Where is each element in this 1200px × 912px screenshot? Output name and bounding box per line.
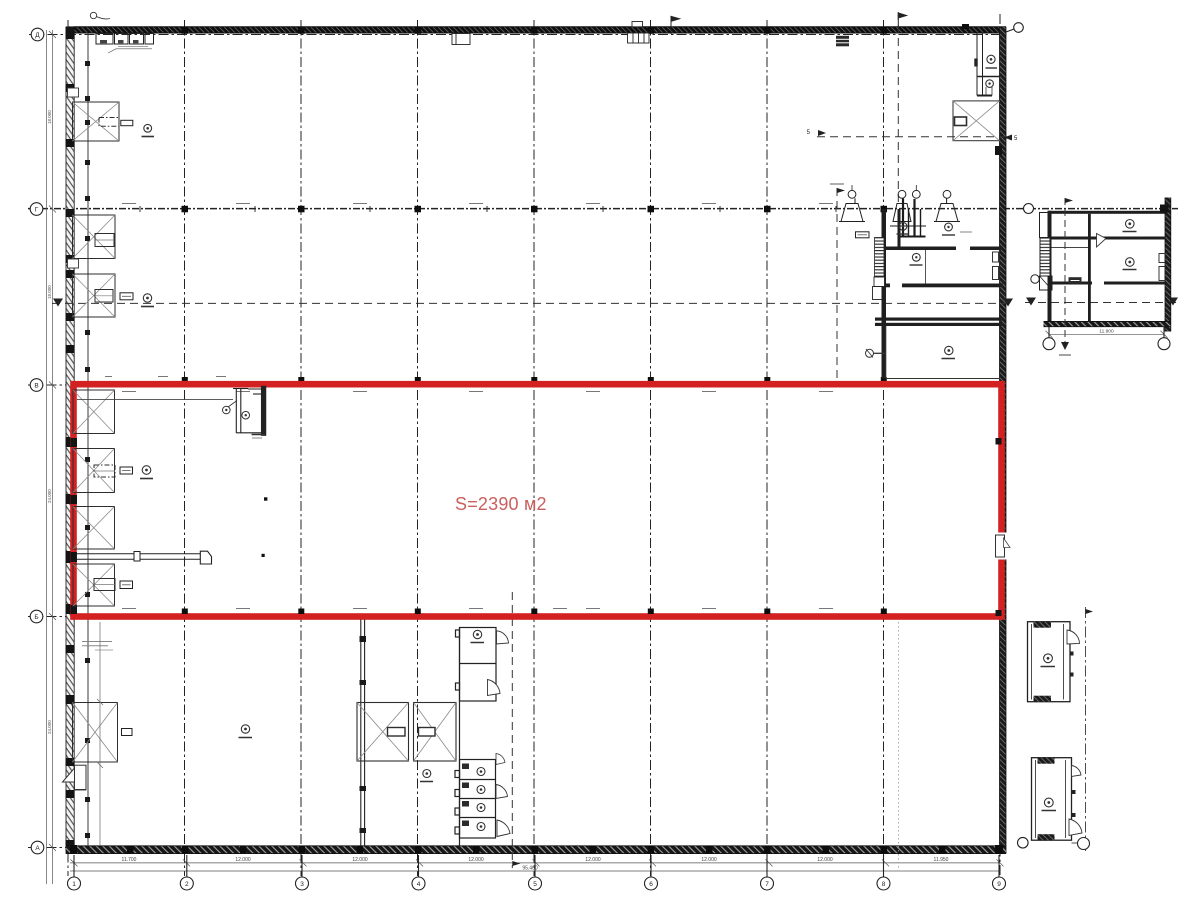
svg-text:18.000: 18.000 [47,110,52,124]
svg-text:Б: Б [34,614,38,621]
svg-text:6: 6 [649,881,653,888]
svg-text:Д: Д [35,32,40,39]
svg-text:5: 5 [533,881,537,888]
svg-text:18.000: 18.000 [47,285,52,299]
svg-text:2: 2 [185,881,189,888]
svg-text:12.000: 12.000 [468,857,484,863]
svg-text:Г: Г [35,207,39,214]
svg-text:S=2390 м2: S=2390 м2 [455,494,547,514]
svg-text:11.950: 11.950 [934,857,949,863]
svg-text:8: 8 [882,881,886,888]
svg-text:12.000: 12.000 [817,857,833,863]
svg-text:9: 9 [997,881,1001,888]
svg-text:11.700: 11.700 [122,857,137,863]
svg-text:24.000: 24.000 [47,489,52,503]
svg-text:А: А [35,845,40,852]
svg-text:24.000: 24.000 [47,720,52,734]
svg-text:7: 7 [765,881,769,888]
svg-text:1: 1 [72,881,76,888]
svg-text:12.000: 12.000 [585,857,601,863]
svg-text:В: В [34,383,38,390]
svg-text:12.000: 12.000 [701,857,717,863]
svg-text:3: 3 [300,881,304,888]
svg-text:11.900: 11.900 [1099,329,1114,335]
svg-text:4: 4 [417,881,421,888]
svg-text:12.000: 12.000 [235,857,251,863]
svg-text:12.000: 12.000 [352,857,368,863]
